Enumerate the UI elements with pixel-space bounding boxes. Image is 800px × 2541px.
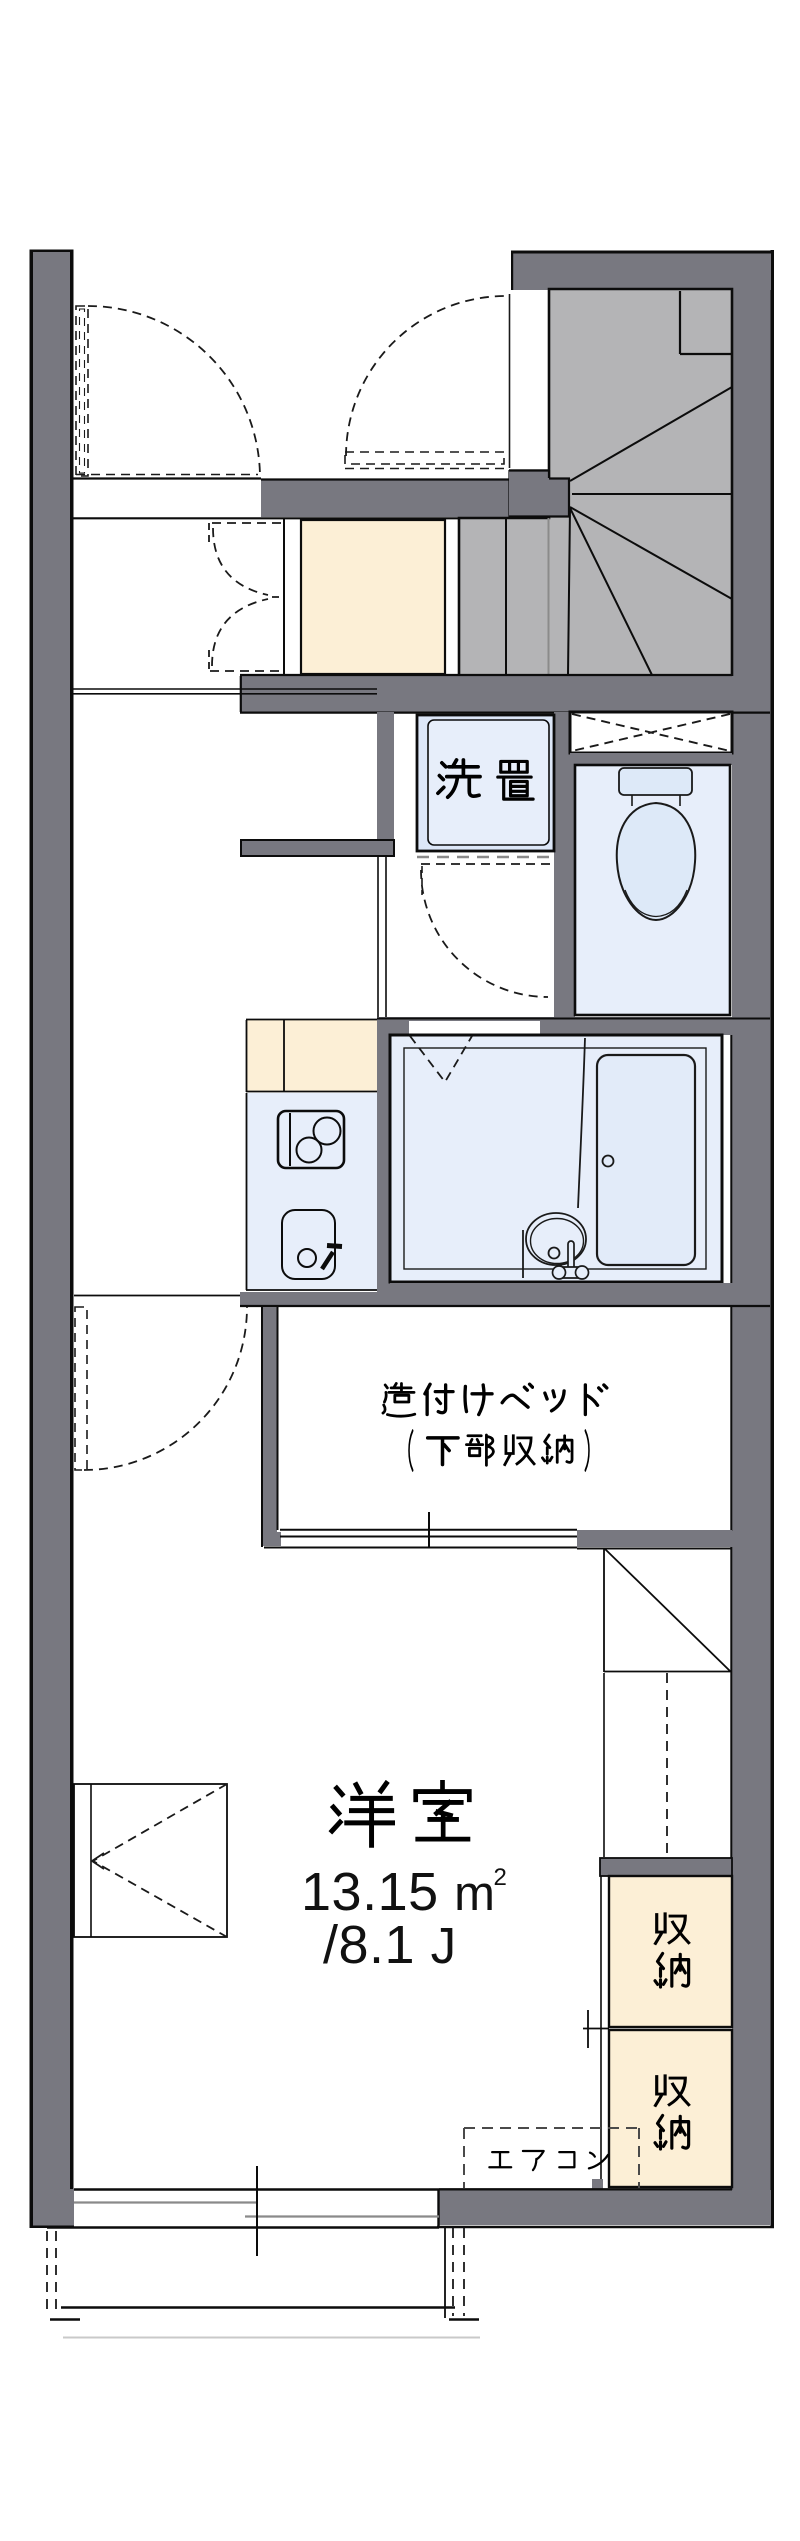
svg-text:/8.1 J: /8.1 J — [323, 1915, 457, 1975]
svg-text:13.15 m2: 13.15 m2 — [301, 1862, 507, 1922]
